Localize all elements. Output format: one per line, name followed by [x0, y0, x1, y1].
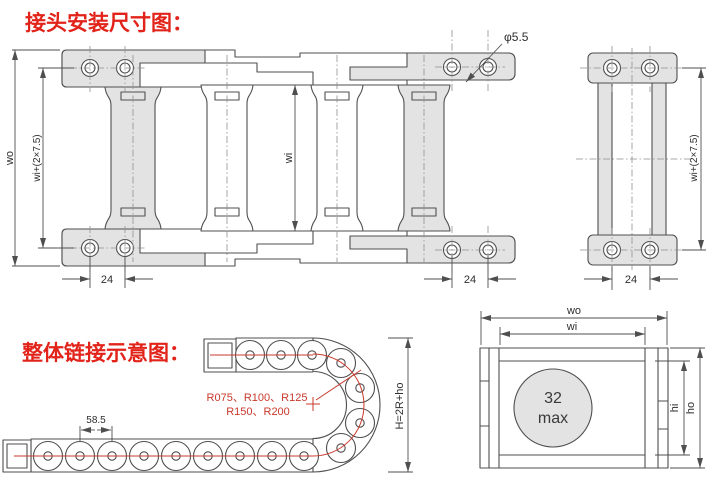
section-dim-inner-width-label: wi	[566, 321, 577, 333]
plan-view: wo wi+(2×7.5) wi 24 24 φ5	[4, 30, 529, 288]
section-dim-outer-height-label: ho	[685, 402, 697, 414]
page-title-assembly: 整体链接示意图：	[22, 341, 190, 365]
page-title-installation: 接头安装尺寸图：	[25, 11, 193, 35]
end-dim-hole-pitch-label: 24	[625, 274, 637, 286]
dim-hole-pitch-right-label: 24	[464, 274, 476, 286]
dim-width-with-flange-label: wi+(2×7.5)	[32, 134, 43, 182]
bend-radii-line1: R075、R100、R125	[207, 392, 308, 404]
dim-hole-pitch-left-label: 24	[101, 274, 113, 286]
dim-chain-height-label: H=2R+ho	[394, 382, 406, 429]
dim-inner-width-label: wi	[283, 153, 295, 164]
cable-circle	[514, 369, 592, 447]
hole-diameter-label: φ5.5	[504, 30, 529, 44]
dim-chain-height: H=2R+ho	[388, 338, 413, 472]
cable-capacity-unit: max	[538, 410, 568, 427]
dim-link-pitch-label: 58.5	[86, 415, 106, 426]
dim-outer-width-label: wo	[4, 151, 16, 166]
dim-link-pitch: 58.5	[80, 415, 112, 441]
section-view: 32 max wo wi hi ho	[480, 305, 705, 468]
bend-radii-line2: R150、R200	[226, 406, 290, 418]
dim-inner-width: wi	[283, 85, 295, 231]
end-dim-width-with-flange-label: wi+(2×7.5)	[689, 134, 700, 182]
section-dim-outer-width-label: wo	[566, 305, 581, 317]
section-dim-inner-width: wi	[500, 321, 645, 345]
section-dim-inner-height-label: hi	[669, 404, 681, 413]
technical-drawing-canvas: 接头安装尺寸图： 整体链接示意图：	[0, 0, 708, 486]
end-dim-hole-pitch: 24	[584, 266, 678, 290]
end-view: wi+(2×7.5) 24	[576, 46, 706, 290]
cable-capacity-value: 32	[544, 390, 562, 407]
drawing-page: 接头安装尺寸图： 整体链接示意图：	[0, 0, 708, 486]
link-snap-tabs	[121, 92, 436, 216]
dim-width-with-flange: wi+(2×7.5)	[32, 68, 74, 248]
